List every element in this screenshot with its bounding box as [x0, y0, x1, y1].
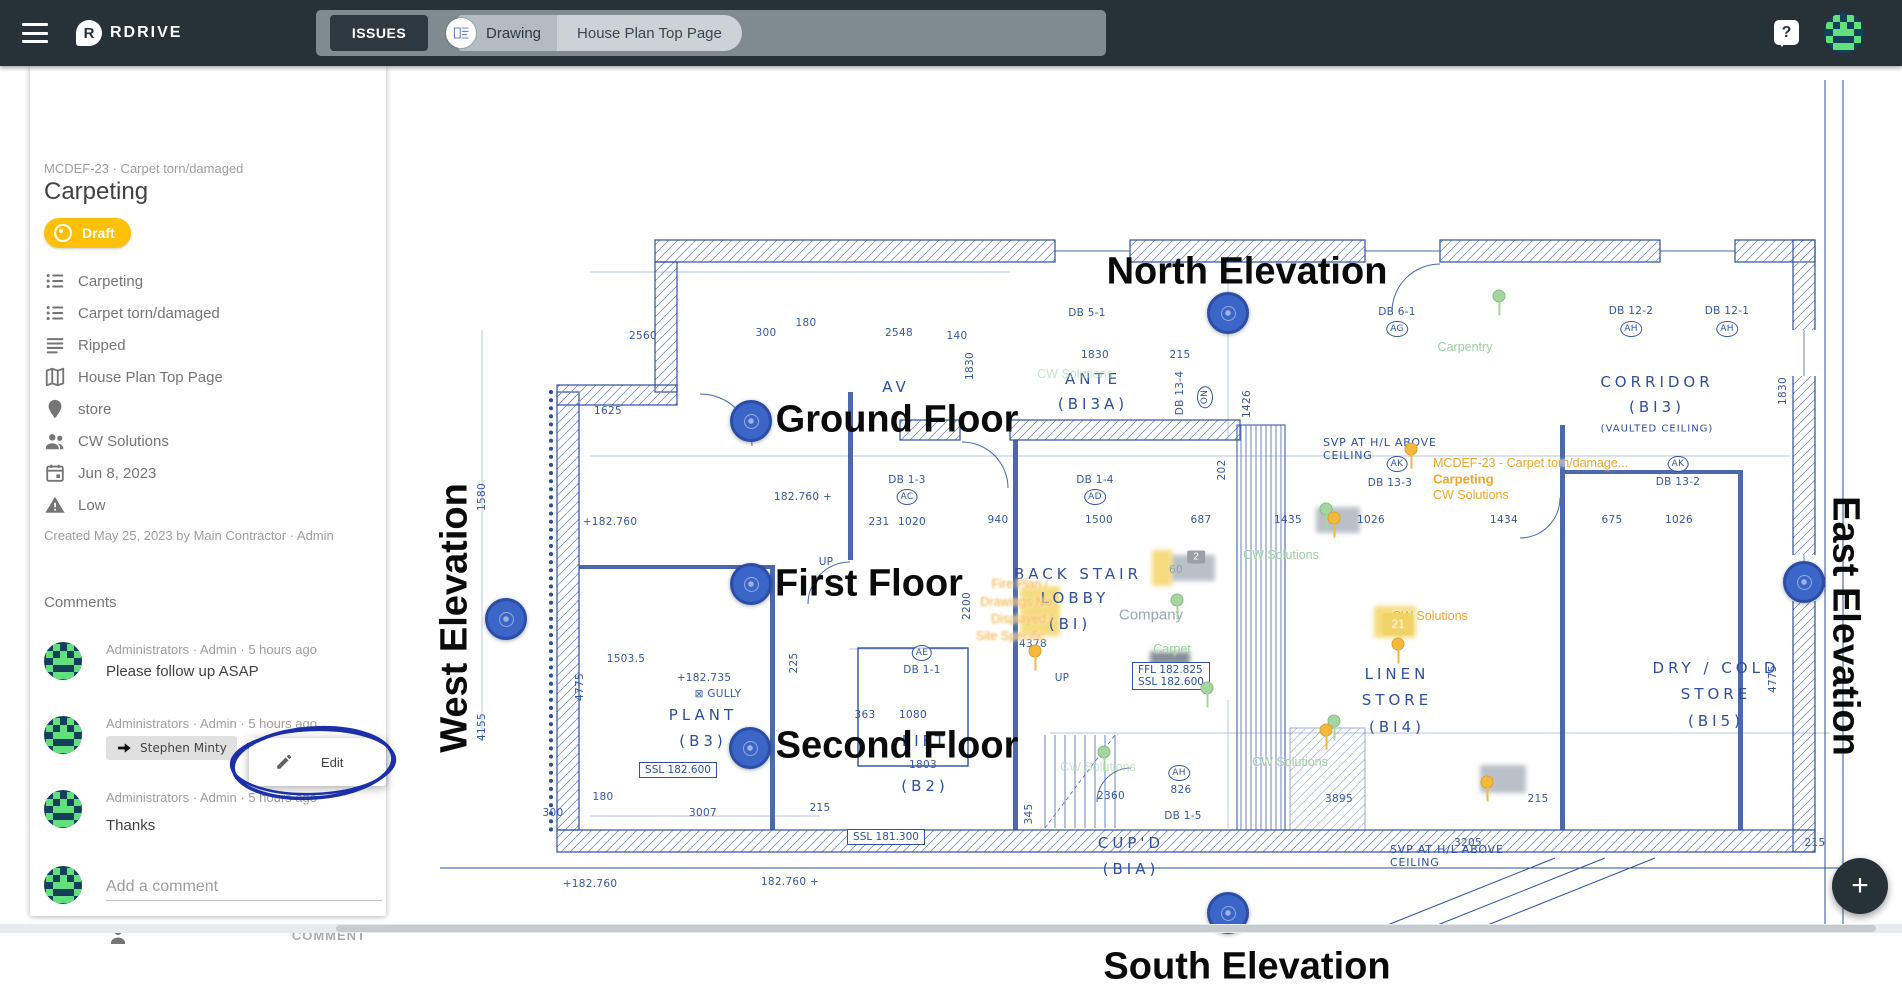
add-issue-fab[interactable]: +	[1832, 858, 1888, 914]
comment-meta: Administrators · Admin · 5 hours ago	[106, 790, 376, 805]
document-tabs: Drawing House Plan Top Page	[446, 15, 742, 51]
people-icon	[44, 430, 66, 452]
status-badge[interactable]: Draft	[44, 218, 131, 248]
add-comment-input[interactable]	[106, 874, 382, 901]
place-pin-icon	[44, 398, 66, 420]
property-company[interactable]: CW Solutions	[44, 425, 372, 457]
comment-item: Administrators · Admin · 5 hours ago Tha…	[44, 790, 376, 834]
breadcrumb: MCDEF-23 · Carpet torn/damaged	[44, 161, 243, 176]
issue-panel: MCDEF-23 · Carpet torn/damaged Carpeting…	[30, 66, 386, 916]
comment-item: Administrators · Admin · 5 hours ago Ple…	[44, 642, 376, 680]
list-bulleted-icon	[44, 302, 66, 324]
comment-meta: Administrators · Admin · 5 hours ago	[106, 716, 376, 731]
status-icon	[54, 224, 72, 242]
created-by-line: Created May 25, 2023 by Main Contractor …	[44, 528, 334, 543]
property-location[interactable]: store	[44, 393, 372, 425]
second-floor-pin[interactable]	[729, 727, 771, 769]
brand-logo: R RDRIVE	[76, 20, 182, 46]
warning-icon	[44, 494, 66, 516]
property-subcategory[interactable]: Carpet torn/damaged	[44, 297, 372, 329]
property-priority[interactable]: Low	[44, 489, 372, 521]
drawing-thumbnail	[446, 18, 476, 48]
issue-title: Carpeting	[44, 178, 148, 206]
comment-avatar	[44, 642, 82, 680]
property-label: Carpet torn/damaged	[78, 305, 220, 322]
property-category[interactable]: Carpeting	[44, 265, 372, 297]
comment-meta: Administrators · Admin · 5 hours ago	[106, 642, 376, 657]
property-label: House Plan Top Page	[78, 369, 223, 386]
edit-menu-item[interactable]: Edit	[249, 738, 386, 786]
horizontal-scrollbar[interactable]	[0, 924, 1902, 933]
property-list: Carpeting Carpet torn/damaged Ripped Hou…	[44, 265, 372, 521]
add-comment-row	[44, 866, 376, 901]
help-icon[interactable]: ?	[1774, 20, 1799, 45]
reply-mention-chip[interactable]: Stephen Minty	[106, 736, 237, 760]
calendar-icon	[44, 462, 66, 484]
map-icon	[44, 366, 66, 388]
issues-button[interactable]: ISSUES	[330, 15, 428, 51]
current-user-avatar	[44, 866, 82, 904]
property-due-date[interactable]: Jun 8, 2023	[44, 457, 372, 489]
comment-body: Please follow up ASAP	[106, 663, 376, 680]
brand-name: RDRIVE	[110, 24, 182, 42]
arrow-right-icon	[116, 740, 132, 756]
rdrive-logo-icon: R	[76, 20, 102, 46]
east-elevation-pin[interactable]	[1783, 561, 1825, 603]
floor-label: South Elevation	[1103, 946, 1390, 989]
user-avatar[interactable]	[1824, 13, 1864, 53]
comments-heading: Comments	[44, 594, 117, 611]
pencil-icon	[275, 753, 293, 771]
hamburger-menu-icon[interactable]	[22, 23, 48, 43]
comment-avatar	[44, 716, 82, 754]
property-label: Low	[78, 497, 106, 514]
notes-icon	[44, 334, 66, 356]
property-description[interactable]: Ripped	[44, 329, 372, 361]
comment-body: Thanks	[106, 817, 376, 834]
property-label: store	[78, 401, 111, 418]
property-drawing[interactable]: House Plan Top Page	[44, 361, 372, 393]
property-label: Jun 8, 2023	[78, 465, 156, 482]
app-bar: R RDRIVE ISSUES Drawing House Plan Top P…	[0, 0, 1902, 66]
tab-container: ISSUES Drawing House Plan Top Page	[316, 10, 1106, 56]
west-elevation-pin[interactable]	[485, 598, 527, 640]
property-label: CW Solutions	[78, 433, 169, 450]
list-bulleted-icon	[44, 270, 66, 292]
property-label: Carpeting	[78, 273, 143, 290]
property-label: Ripped	[78, 337, 126, 354]
north-elevation-pin[interactable]	[1207, 292, 1249, 334]
horizontal-scrollbar-thumb[interactable]	[336, 925, 1876, 932]
ground-floor-pin[interactable]	[730, 400, 772, 442]
first-floor-pin[interactable]	[730, 563, 772, 605]
tab-house-plan-top-page[interactable]: House Plan Top Page	[557, 15, 742, 51]
comment-avatar	[44, 790, 82, 828]
